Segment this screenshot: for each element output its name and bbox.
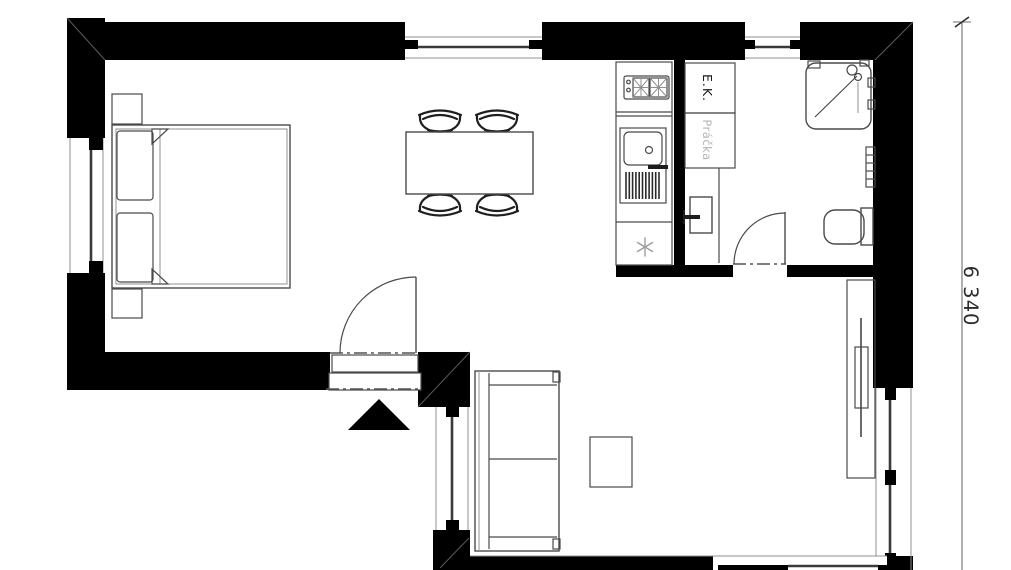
window-living-left: [433, 407, 470, 530]
kitchen-unit-label: E.K.: [700, 74, 715, 102]
floor-plan-page: E.K. Práčka: [0, 0, 1011, 570]
window-top-right: [745, 22, 800, 60]
nightstand-bottom: [112, 289, 142, 318]
floor-plan-drawing: E.K. Práčka: [0, 0, 1011, 570]
washing-machine-label: Práčka: [700, 119, 714, 160]
background: [0, 0, 1011, 570]
dimension-label: 6 340: [959, 266, 982, 327]
window-left: [67, 138, 105, 273]
window-top-left: [405, 22, 542, 60]
nightstand-top: [112, 94, 142, 124]
window-right: [875, 388, 911, 570]
